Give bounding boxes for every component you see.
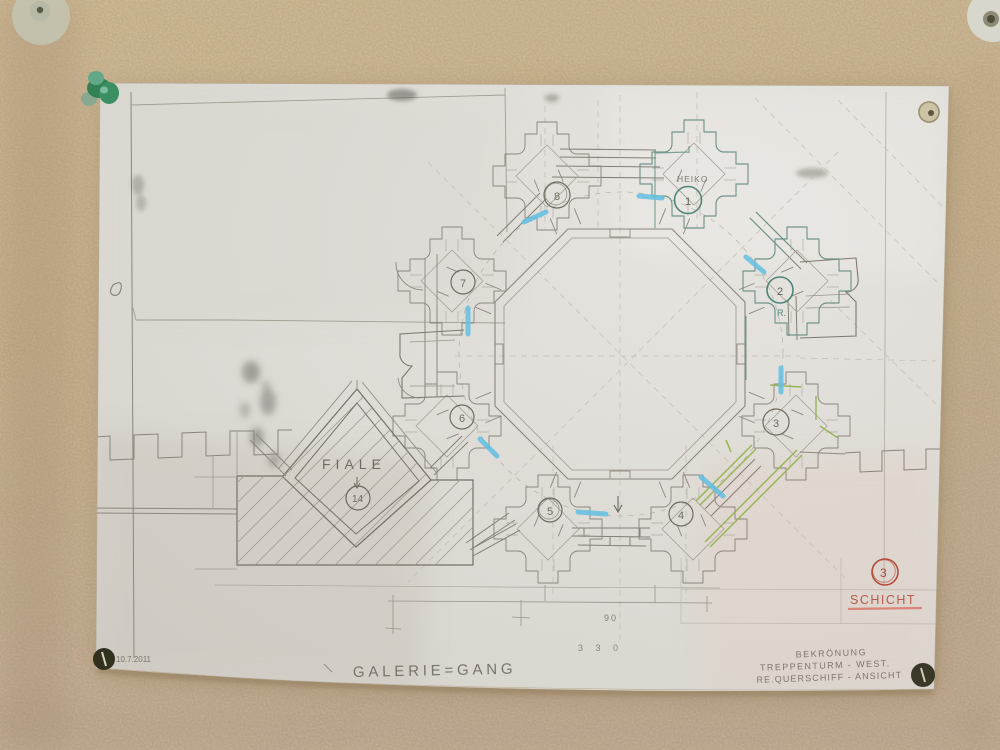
svg-text:6: 6 xyxy=(459,413,465,425)
svg-text:7: 7 xyxy=(460,278,466,290)
svg-text:3: 3 xyxy=(880,566,887,580)
svg-text:2: 2 xyxy=(777,286,783,298)
svg-text:SCHICHT: SCHICHT xyxy=(850,593,916,607)
svg-text:3 3 0: 3 3 0 xyxy=(578,643,623,653)
svg-text:14: 14 xyxy=(352,494,364,505)
svg-text:10.7.2011: 10.7.2011 xyxy=(116,655,152,664)
svg-text:4: 4 xyxy=(678,510,684,522)
svg-text:3: 3 xyxy=(773,418,779,430)
svg-text:GALERIE=GANG: GALERIE=GANG xyxy=(353,661,517,681)
svg-text:8: 8 xyxy=(554,191,560,203)
svg-text:90: 90 xyxy=(604,613,618,623)
svg-text:HEIKO: HEIKO xyxy=(677,174,708,184)
svg-text:5: 5 xyxy=(547,506,553,518)
svg-text:1: 1 xyxy=(685,196,691,208)
svg-text:R.: R. xyxy=(777,308,786,318)
svg-text:FIALE: FIALE xyxy=(322,456,386,472)
